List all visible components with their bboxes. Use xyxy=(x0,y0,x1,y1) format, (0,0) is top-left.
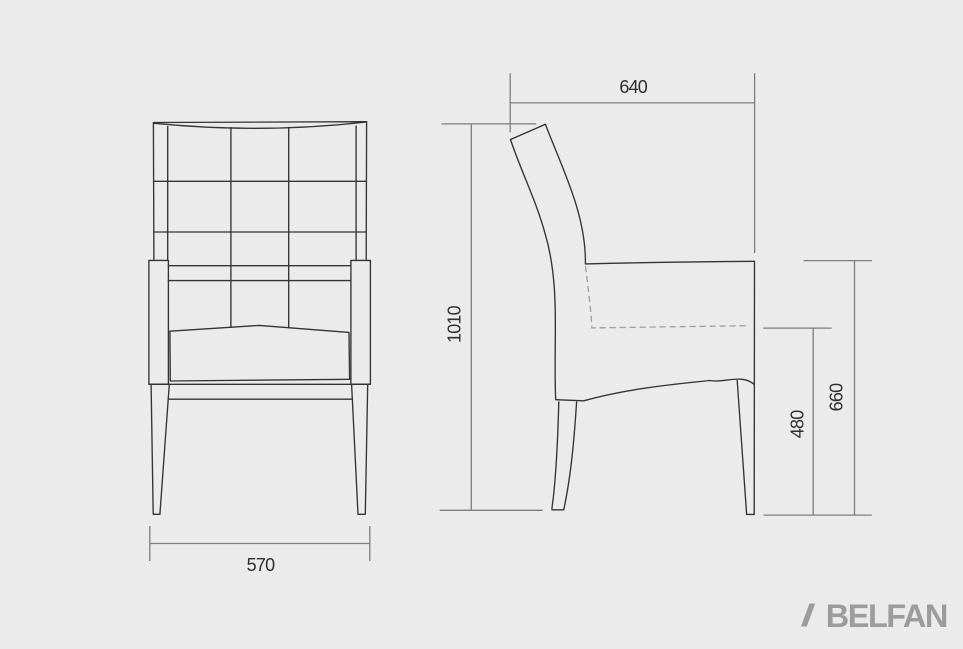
svg-text:640: 640 xyxy=(619,77,647,97)
svg-text:480: 480 xyxy=(787,410,807,438)
svg-text:660: 660 xyxy=(827,383,847,411)
svg-text:BELFAN: BELFAN xyxy=(826,598,947,634)
svg-text:570: 570 xyxy=(247,555,275,575)
svg-text:1010: 1010 xyxy=(445,305,465,343)
